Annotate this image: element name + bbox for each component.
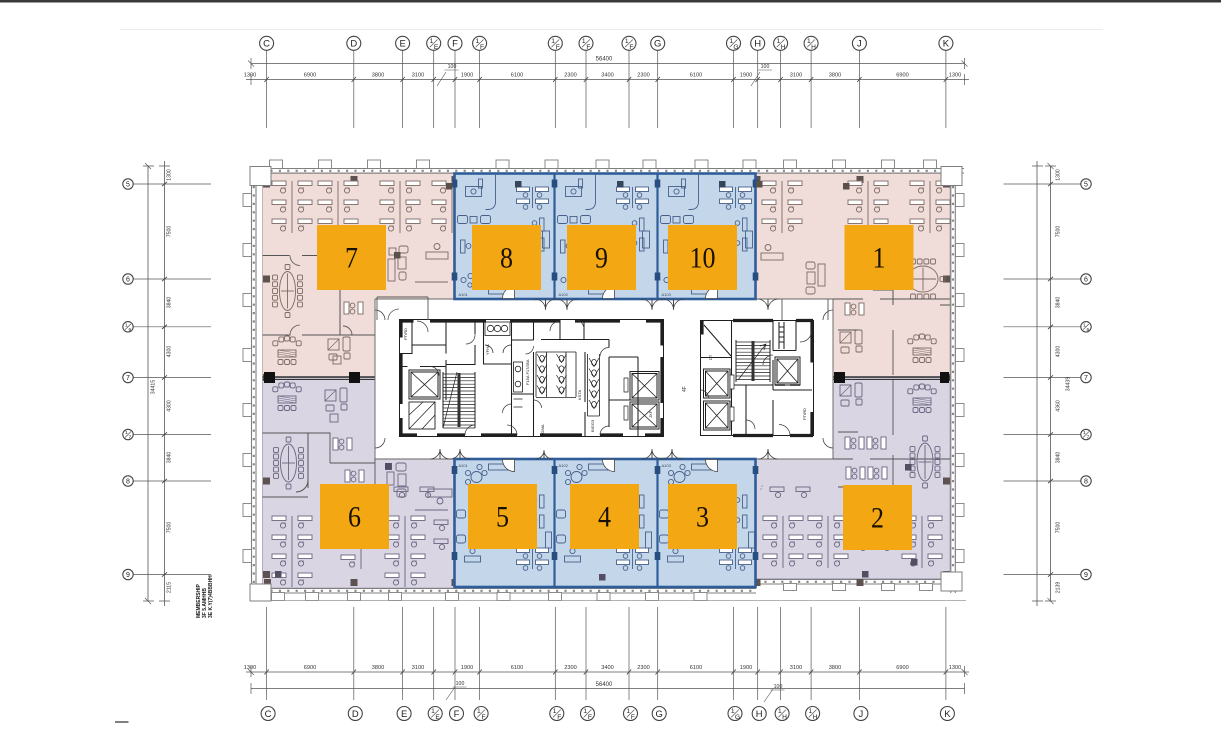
svg-text:F: F	[629, 44, 633, 51]
svg-text:7: 7	[128, 435, 131, 441]
svg-text:3100: 3100	[790, 665, 802, 671]
svg-text:BIGG3: BIGG3	[590, 419, 595, 432]
svg-text:2: 2	[871, 502, 884, 535]
svg-text:1300: 1300	[244, 665, 256, 671]
svg-text:1: 1	[626, 708, 630, 715]
svg-text:1300: 1300	[167, 169, 173, 181]
svg-text:1: 1	[553, 708, 557, 715]
svg-text:G: G	[656, 709, 663, 720]
svg-text:34439: 34439	[1066, 377, 1072, 392]
svg-text:8: 8	[126, 478, 130, 485]
svg-text:JXF: JXF	[648, 410, 653, 418]
svg-text:1300: 1300	[1056, 169, 1062, 181]
svg-text:F: F	[588, 714, 592, 721]
svg-text:H: H	[782, 714, 787, 721]
svg-text:F: F	[454, 709, 460, 720]
svg-text:2115: 2115	[167, 582, 173, 593]
svg-text:K: K	[944, 709, 951, 720]
svg-text:7500: 7500	[1056, 522, 1062, 534]
svg-text:DT: DT	[708, 354, 713, 360]
svg-text:2300: 2300	[564, 73, 576, 79]
svg-text:34415: 34415	[151, 380, 157, 395]
svg-text:1300: 1300	[949, 73, 961, 79]
svg-text:6: 6	[128, 327, 131, 333]
svg-text:3: 3	[696, 501, 709, 534]
svg-text:H: H	[756, 709, 763, 720]
svg-text:8: 8	[1084, 478, 1088, 485]
svg-text:3840: 3840	[1056, 297, 1062, 309]
svg-text:9: 9	[126, 572, 130, 579]
svg-text:2300: 2300	[564, 665, 576, 671]
svg-text:G: G	[735, 714, 740, 721]
svg-text:A102: A102	[559, 292, 569, 297]
svg-text:6: 6	[126, 276, 130, 283]
svg-text:5: 5	[126, 181, 130, 188]
svg-text:YFHA: YFHA	[485, 344, 490, 355]
svg-text:3100: 3100	[790, 73, 802, 79]
svg-text:56400: 56400	[596, 57, 613, 63]
svg-text:F: F	[631, 714, 635, 721]
svg-text:3400: 3400	[601, 73, 613, 79]
svg-text:1300: 1300	[949, 665, 961, 671]
svg-text:TOMA: TOMA	[540, 424, 545, 436]
svg-text:A101: A101	[459, 463, 469, 468]
svg-text:7: 7	[345, 242, 358, 275]
svg-text:H: H	[781, 44, 786, 51]
svg-text:F: F	[452, 39, 458, 50]
svg-text:3840: 3840	[167, 452, 173, 464]
svg-text:6900: 6900	[304, 73, 316, 79]
svg-text:PT/RD: PT/RD	[802, 408, 807, 420]
svg-text:6100: 6100	[690, 665, 702, 671]
svg-text:7500: 7500	[1056, 226, 1062, 238]
svg-text:A103: A103	[662, 292, 672, 297]
svg-text:7: 7	[126, 375, 130, 382]
svg-text:6900: 6900	[896, 665, 908, 671]
svg-text:1900: 1900	[740, 73, 752, 79]
svg-text:1: 1	[551, 38, 555, 45]
svg-text:2139: 2139	[1056, 582, 1062, 594]
svg-text:3800: 3800	[829, 73, 841, 79]
svg-text:5: 5	[1084, 181, 1088, 188]
svg-text:3400: 3400	[601, 665, 613, 671]
svg-text:F: F	[557, 714, 561, 721]
svg-text:J: J	[859, 709, 864, 720]
svg-text:KSTA: KSTA	[577, 390, 582, 400]
svg-text:1900: 1900	[461, 73, 473, 79]
svg-text:D: D	[352, 709, 359, 720]
svg-text:E: E	[435, 714, 440, 721]
svg-text:6: 6	[348, 501, 361, 534]
svg-text:6: 6	[1086, 327, 1089, 333]
svg-text:H: H	[811, 44, 816, 51]
svg-text:PT/RD: PT/RD	[403, 328, 408, 340]
svg-text:E: E	[401, 709, 407, 720]
svg-text:100: 100	[456, 681, 465, 687]
svg-text:10: 10	[690, 242, 716, 275]
svg-text:4300: 4300	[167, 346, 173, 358]
svg-text:E: E	[399, 39, 405, 50]
svg-text:5: 5	[496, 501, 509, 534]
svg-text:J: J	[857, 39, 862, 50]
svg-text:F: F	[482, 714, 486, 721]
svg-text:3840: 3840	[167, 297, 173, 309]
svg-text:F: F	[480, 44, 484, 51]
svg-text:K: K	[943, 39, 950, 50]
svg-text:9: 9	[1084, 572, 1088, 579]
svg-text:C: C	[265, 709, 272, 720]
svg-text:7: 7	[1084, 375, 1088, 382]
svg-text:2300: 2300	[637, 73, 649, 79]
svg-text:9: 9	[595, 242, 608, 275]
svg-text:G: G	[733, 44, 738, 51]
svg-text:6100: 6100	[690, 73, 702, 79]
svg-text:3840: 3840	[1056, 452, 1062, 464]
svg-text:H: H	[754, 39, 761, 50]
svg-text:56400: 56400	[596, 682, 613, 688]
svg-text:100: 100	[761, 64, 770, 70]
svg-text:3E K.Y(7)4BBBHH: 3E K.Y(7)4BBBHH	[208, 575, 214, 618]
svg-text:1: 1	[873, 242, 886, 275]
svg-text:C: C	[263, 39, 270, 50]
svg-text:2300: 2300	[637, 665, 649, 671]
svg-text:7500: 7500	[167, 226, 173, 238]
svg-text:1900: 1900	[740, 665, 752, 671]
svg-text:7: 7	[1086, 435, 1089, 441]
svg-text:4F: 4F	[682, 386, 688, 392]
svg-text:1900: 1900	[461, 665, 473, 671]
svg-text:1: 1	[582, 38, 586, 45]
svg-text:6900: 6900	[304, 665, 316, 671]
svg-text:1: 1	[583, 708, 587, 715]
svg-text:8: 8	[500, 242, 513, 275]
svg-text:D: D	[350, 39, 357, 50]
svg-text:6: 6	[1084, 276, 1088, 283]
svg-text:3800: 3800	[372, 73, 384, 79]
svg-text:3800: 3800	[372, 665, 384, 671]
svg-text:1: 1	[625, 38, 629, 45]
svg-text:A103: A103	[662, 463, 672, 468]
svg-text:7500: 7500	[167, 522, 173, 534]
svg-text:F15A F17/35A: F15A F17/35A	[525, 359, 530, 385]
svg-text:G: G	[654, 39, 661, 50]
svg-text:1: 1	[476, 38, 480, 45]
svg-text:A102: A102	[559, 463, 569, 468]
svg-text:6100: 6100	[511, 665, 523, 671]
svg-text:F: F	[556, 44, 560, 51]
svg-text:1300: 1300	[244, 73, 256, 79]
svg-text:3100: 3100	[412, 665, 424, 671]
svg-text:4: 4	[598, 501, 611, 534]
svg-text:4300: 4300	[1056, 346, 1062, 358]
svg-text:6100: 6100	[511, 73, 523, 79]
svg-text:6900: 6900	[896, 73, 908, 79]
svg-text:H: H	[813, 714, 818, 721]
svg-text:A101: A101	[459, 292, 469, 297]
svg-text:4360: 4360	[1056, 400, 1062, 412]
svg-text:3800: 3800	[829, 665, 841, 671]
svg-text:1: 1	[477, 708, 481, 715]
svg-text:3100: 3100	[412, 73, 424, 79]
svg-text:100: 100	[774, 684, 783, 690]
svg-text:F: F	[586, 44, 590, 51]
svg-text:E: E	[434, 44, 439, 51]
svg-text:4300: 4300	[167, 400, 173, 412]
svg-text:100: 100	[448, 64, 457, 70]
